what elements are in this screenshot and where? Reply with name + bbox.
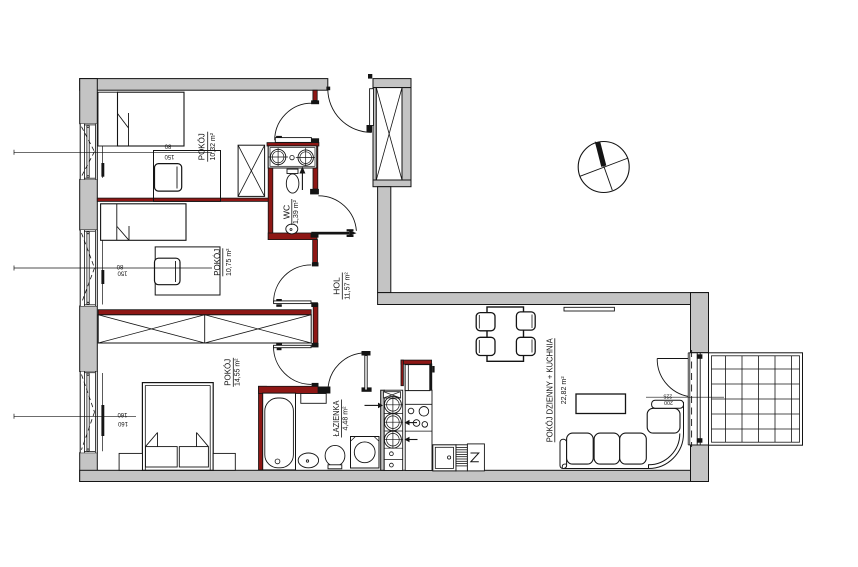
svg-text:HOL: HOL — [332, 277, 342, 295]
svg-text:160: 160 — [117, 420, 128, 426]
svg-text:WC: WC — [282, 205, 292, 219]
svg-text:11,57 m²: 11,57 m² — [343, 272, 352, 300]
svg-text:80: 80 — [116, 263, 123, 269]
svg-text:22,82 m²: 22,82 m² — [559, 376, 568, 405]
svg-text:POKÓJ DZIENNY + KUCHNIA: POKÓJ DZIENNY + KUCHNIA — [545, 338, 555, 442]
svg-text:1,39 m²: 1,39 m² — [291, 199, 300, 224]
svg-text:200: 200 — [664, 399, 673, 405]
svg-text:10,32 m²: 10,32 m² — [208, 132, 217, 160]
svg-text:4,48 m²: 4,48 m² — [340, 406, 349, 431]
svg-text:POKÓJ: POKÓJ — [212, 249, 222, 276]
svg-text:150: 150 — [164, 153, 175, 159]
svg-text:160: 160 — [117, 411, 128, 417]
svg-text:150: 150 — [117, 270, 128, 276]
svg-text:10,75 m²: 10,75 m² — [224, 248, 233, 276]
svg-text:14,55 m²: 14,55 m² — [232, 358, 241, 386]
svg-text:POKÓJ: POKÓJ — [197, 133, 207, 160]
svg-text:POKÓJ: POKÓJ — [223, 359, 233, 386]
svg-text:225: 225 — [663, 393, 672, 399]
svg-text:80: 80 — [164, 143, 171, 149]
